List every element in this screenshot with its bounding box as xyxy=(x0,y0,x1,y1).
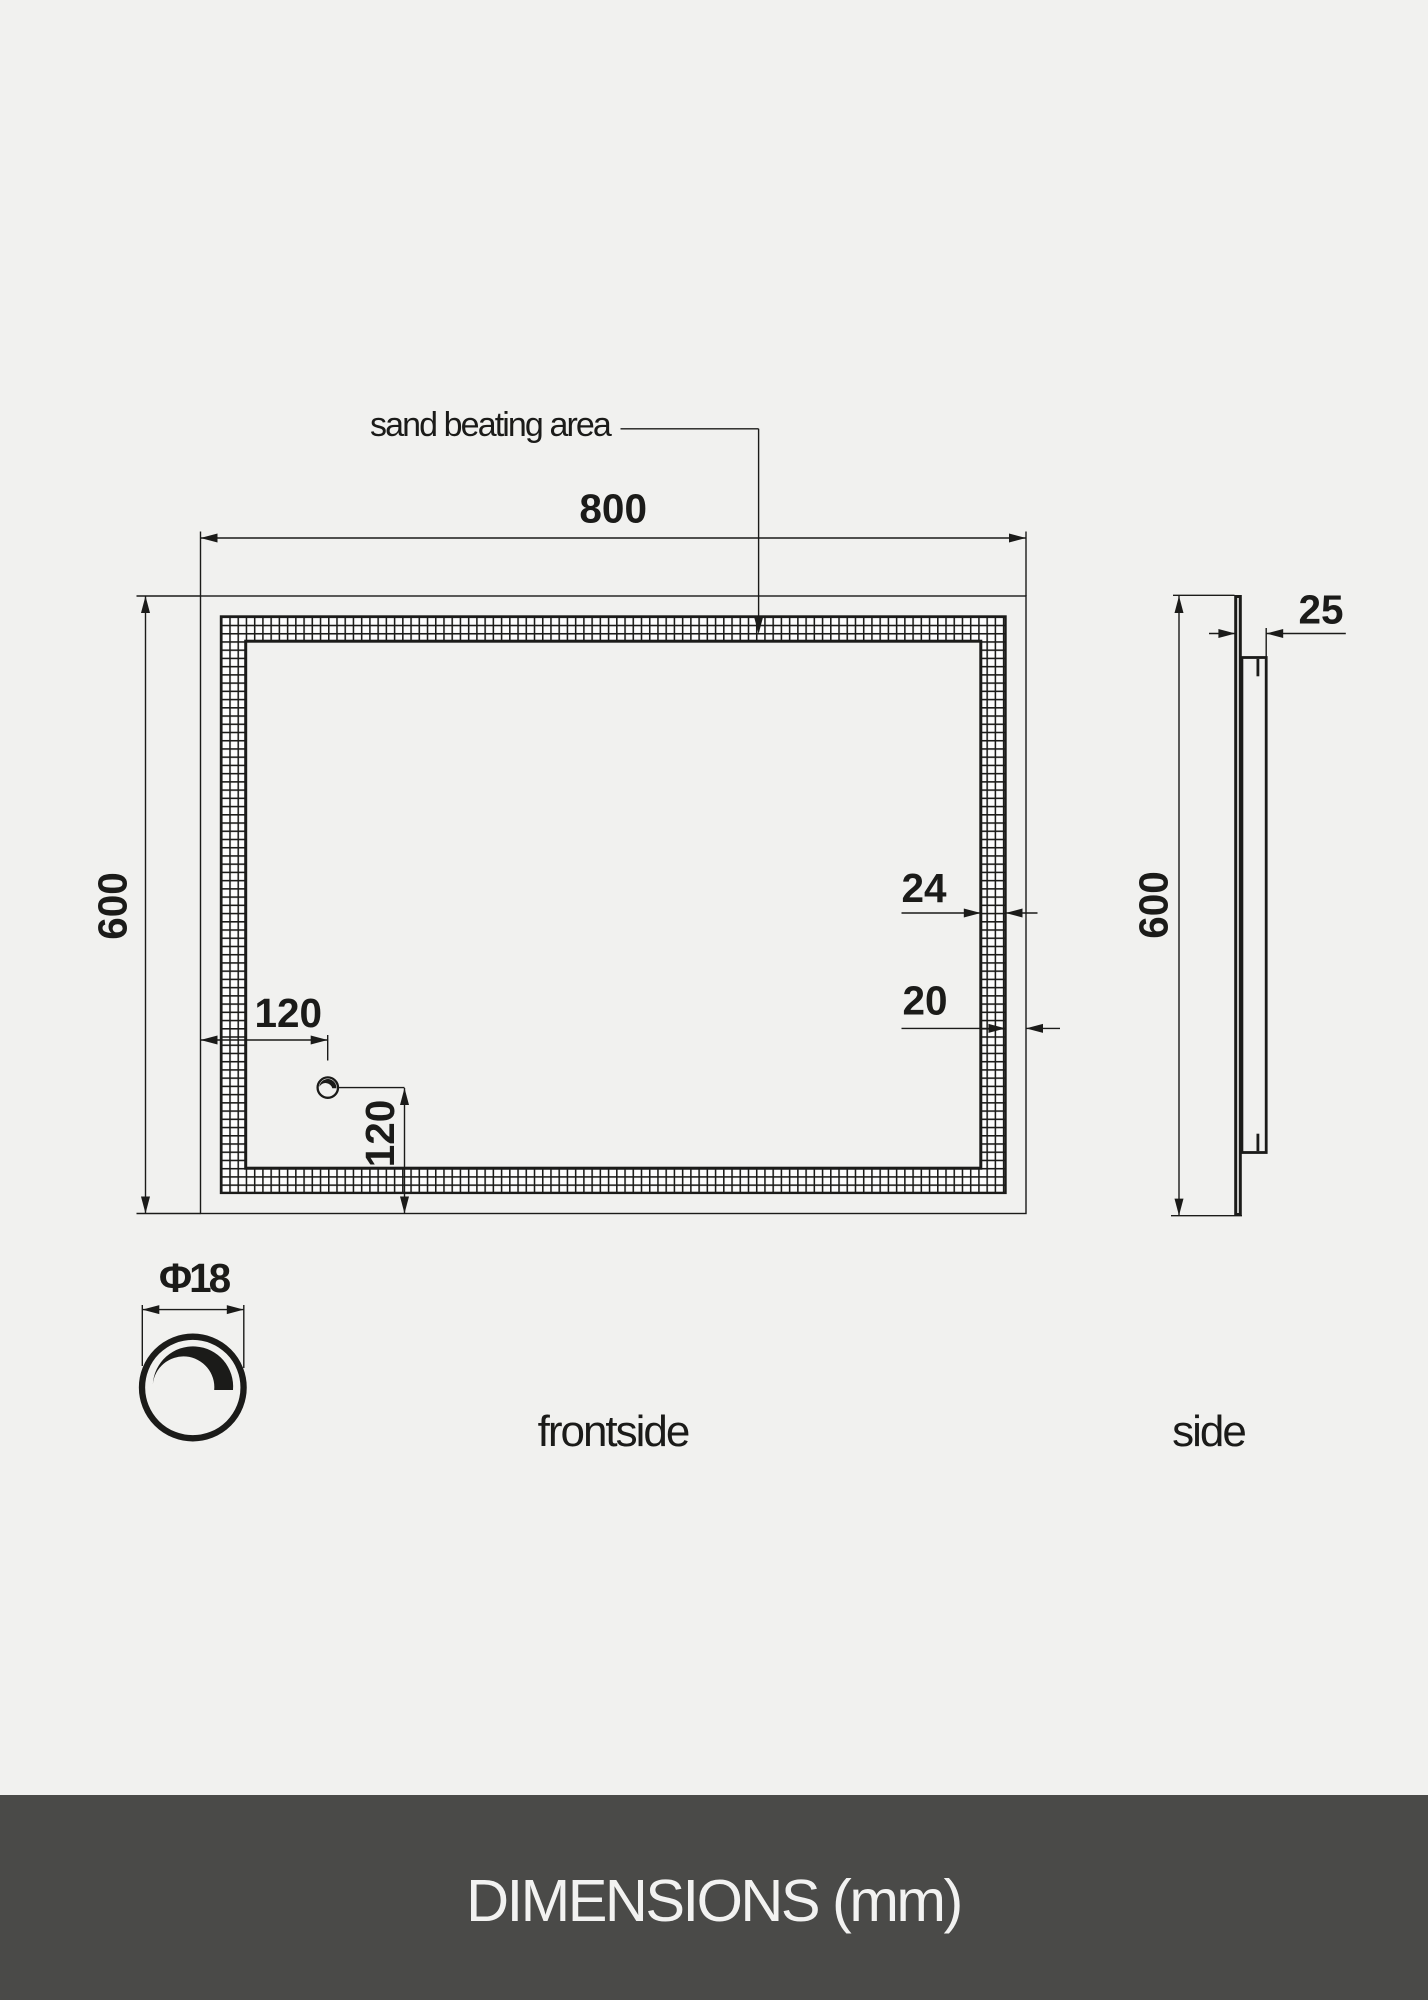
svg-text:120: 120 xyxy=(255,990,323,1036)
svg-text:600: 600 xyxy=(90,872,136,940)
svg-text:600: 600 xyxy=(1131,871,1177,939)
svg-text:DIMENSIONS (mm): DIMENSIONS (mm) xyxy=(466,1867,961,1934)
svg-text:25: 25 xyxy=(1298,587,1343,633)
svg-text:800: 800 xyxy=(579,486,647,532)
svg-text:24: 24 xyxy=(901,865,947,911)
svg-text:sand beating area: sand beating area xyxy=(370,406,612,444)
svg-text:20: 20 xyxy=(902,977,947,1023)
svg-text:frontside: frontside xyxy=(538,1407,689,1456)
svg-text:side: side xyxy=(1172,1407,1245,1456)
svg-text:120: 120 xyxy=(357,1100,403,1168)
svg-text:Φ18: Φ18 xyxy=(159,1255,231,1301)
